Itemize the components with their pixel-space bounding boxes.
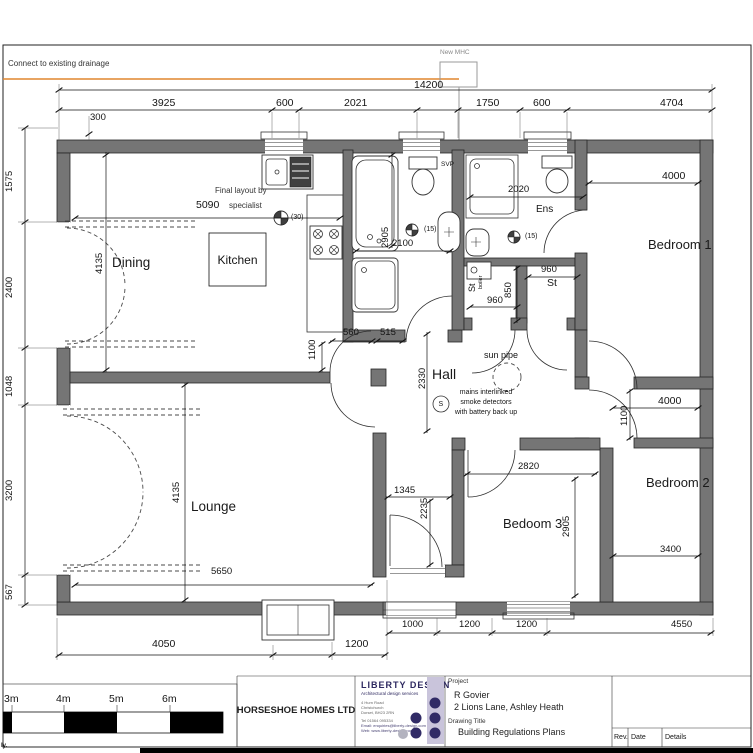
dim-2905-bed3: 2905 [562,516,572,537]
extract-fan-15a [406,224,418,236]
scale-label-5m: 5m [109,694,124,705]
room-label-st: St [547,278,557,289]
scale-bar [3,705,223,733]
dim-2820: 2820 [518,462,539,472]
note-corner: ly. [1,743,7,749]
floorplan-linework [0,0,753,753]
note-sun-pipe: sun pipe [484,351,518,360]
dim-1575: 1575 [5,171,15,192]
dim-1200a: 1200 [459,620,480,630]
room-label-kitchen: Kitchen [209,233,266,286]
titleblock-company: HORSESHOE HOMES LTD [237,676,355,745]
wc-pan [412,169,434,195]
note-fan30: (30) [291,214,303,221]
dim-515: 515 [380,328,396,338]
dim-3400: 3400 [660,545,681,555]
dim-560: 560 [343,328,359,338]
dim-1000: 1000 [402,620,423,630]
dim-850: 850 [504,282,514,298]
titleblock-drawing-title-label: Drawing Title [448,719,486,726]
dim-567: 567 [5,584,15,600]
dim-4000-bed1: 4000 [662,171,685,182]
sun-pipe-circle [493,363,521,391]
dim-4550: 4550 [671,620,692,630]
note-final-layout-1: Final layout by [215,187,267,195]
note-boiler: boiler [479,276,485,289]
windows [57,132,574,640]
extract-fan-15b [508,231,520,243]
liberty-dots-logo [355,676,445,745]
room-label-ens: Ens [536,205,553,215]
smoke-detector-note: mains interlinked smoke detectors with b… [442,388,530,417]
dim-4000-bed2: 4000 [658,396,681,407]
dim-3925: 3925 [152,98,175,109]
dim-300: 300 [90,113,106,123]
dim-600b: 600 [533,98,551,109]
dim-2905-bath: 2905 [381,227,391,248]
titleblock-client: R Govier [454,691,490,700]
dim-4704: 4704 [660,98,683,109]
titleblock-address: 2 Lions Lane, Ashley Heath [454,703,564,712]
scale-label-4m: 4m [56,694,71,705]
dim-600a: 600 [276,98,294,109]
dim-4050: 4050 [152,639,175,650]
room-label-bedroom3: Bedoom 3 [503,517,562,530]
wc-cistern [409,157,437,169]
ens-wc-pan [546,169,568,193]
note-fan15a: (15) [424,226,436,233]
dim-2100: 2100 [392,239,413,249]
dim-1345: 1345 [394,486,415,496]
bath [352,156,398,251]
note-fan15b: (15) [525,233,537,240]
dim-2330: 2330 [418,368,428,389]
dim-1200b: 1200 [516,620,537,630]
shower-tray [352,258,398,312]
titleblock-project-label: Project [448,679,468,686]
dim-5650: 5650 [211,567,232,577]
room-label-dining: Dining [112,256,150,270]
room-label-hall: Hall [432,367,456,381]
note-final-layout-2: specialist [229,202,262,210]
dim-4135-lounge: 4135 [172,482,182,503]
room-label-bedroom2: Bedroom 2 [646,476,710,489]
titleblock-date-header: Date [631,734,646,741]
dim-960-left: 960 [487,296,503,306]
titleblock-details-header: Details [665,734,686,741]
titleblock-drawing-title: Building Regulations Plans [458,728,565,737]
dim-2020: 2020 [508,185,529,195]
note-drainage: Connect to existing drainage [8,60,109,68]
ens-wc-cistern [542,156,572,168]
ens-basin [466,229,489,256]
dim-2400: 2400 [5,277,15,298]
room-label-bedroom1: Bedroom 1 [648,238,712,251]
kitchen-counter [307,195,343,332]
room-label-lounge: Lounge [191,500,236,514]
note-svp: SVP [441,162,454,169]
dim-1100-hall: 1100 [308,340,318,360]
titleblock-rev-header: Rev. [614,734,628,741]
dim-overall: 14200 [414,80,443,91]
dim-960-right: 960 [541,265,557,275]
floor-plan-sheet: Connect to existing drainage New MHC SVP… [0,0,753,753]
dim-1048: 1048 [5,376,15,397]
dim-1750: 1750 [476,98,499,109]
dim-4135-dining: 4135 [95,253,105,274]
scale-label-3m: 3m [4,694,19,705]
scale-label-6m: 6m [162,694,177,705]
dim-1200c: 1200 [345,639,368,650]
dim-2021: 2021 [344,98,367,109]
dim-1100-corridor: 1100 [620,406,630,426]
dim-5090: 5090 [196,200,219,211]
dim-2235: 2235 [420,498,430,519]
room-label-st-left: St [468,283,477,292]
dim-3200: 3200 [5,480,15,501]
note-new-mhc: New MHC [440,50,470,57]
